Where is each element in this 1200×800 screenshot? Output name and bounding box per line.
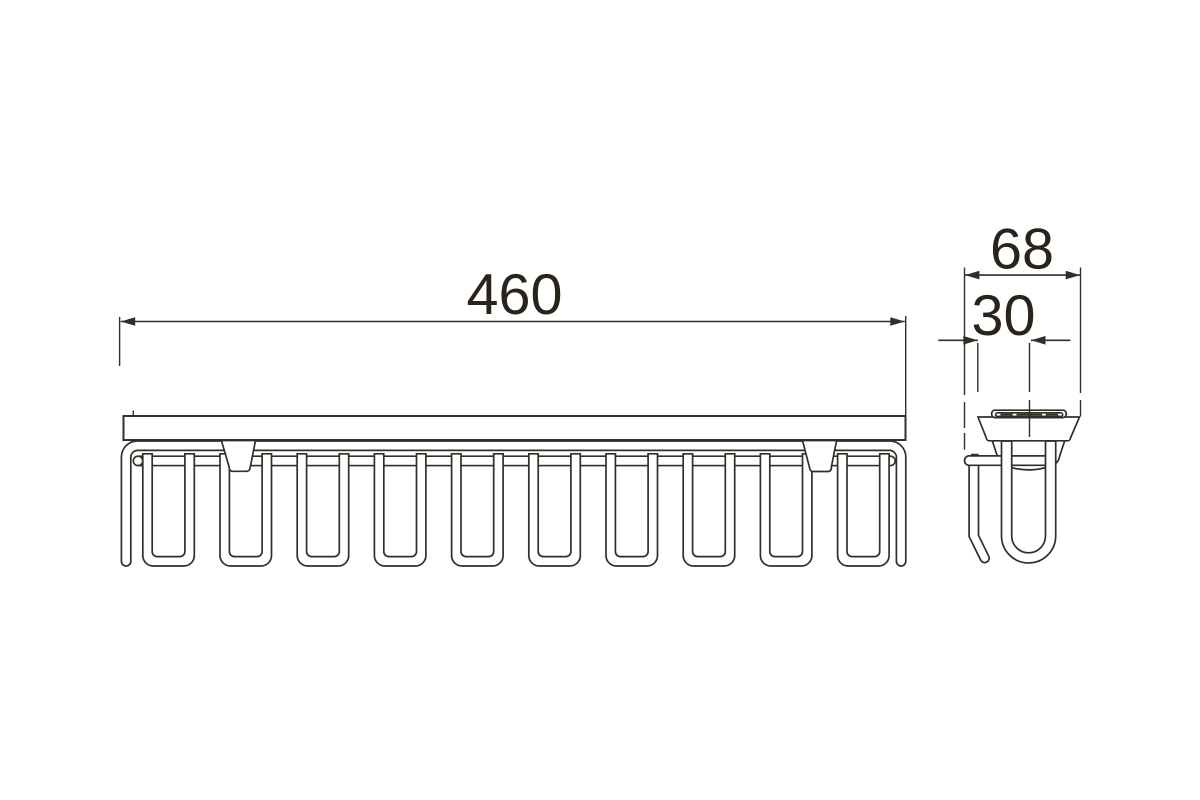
svg-text:30: 30 [972,284,1036,348]
svg-text:68: 68 [990,218,1054,282]
svg-text:460: 460 [467,263,563,327]
